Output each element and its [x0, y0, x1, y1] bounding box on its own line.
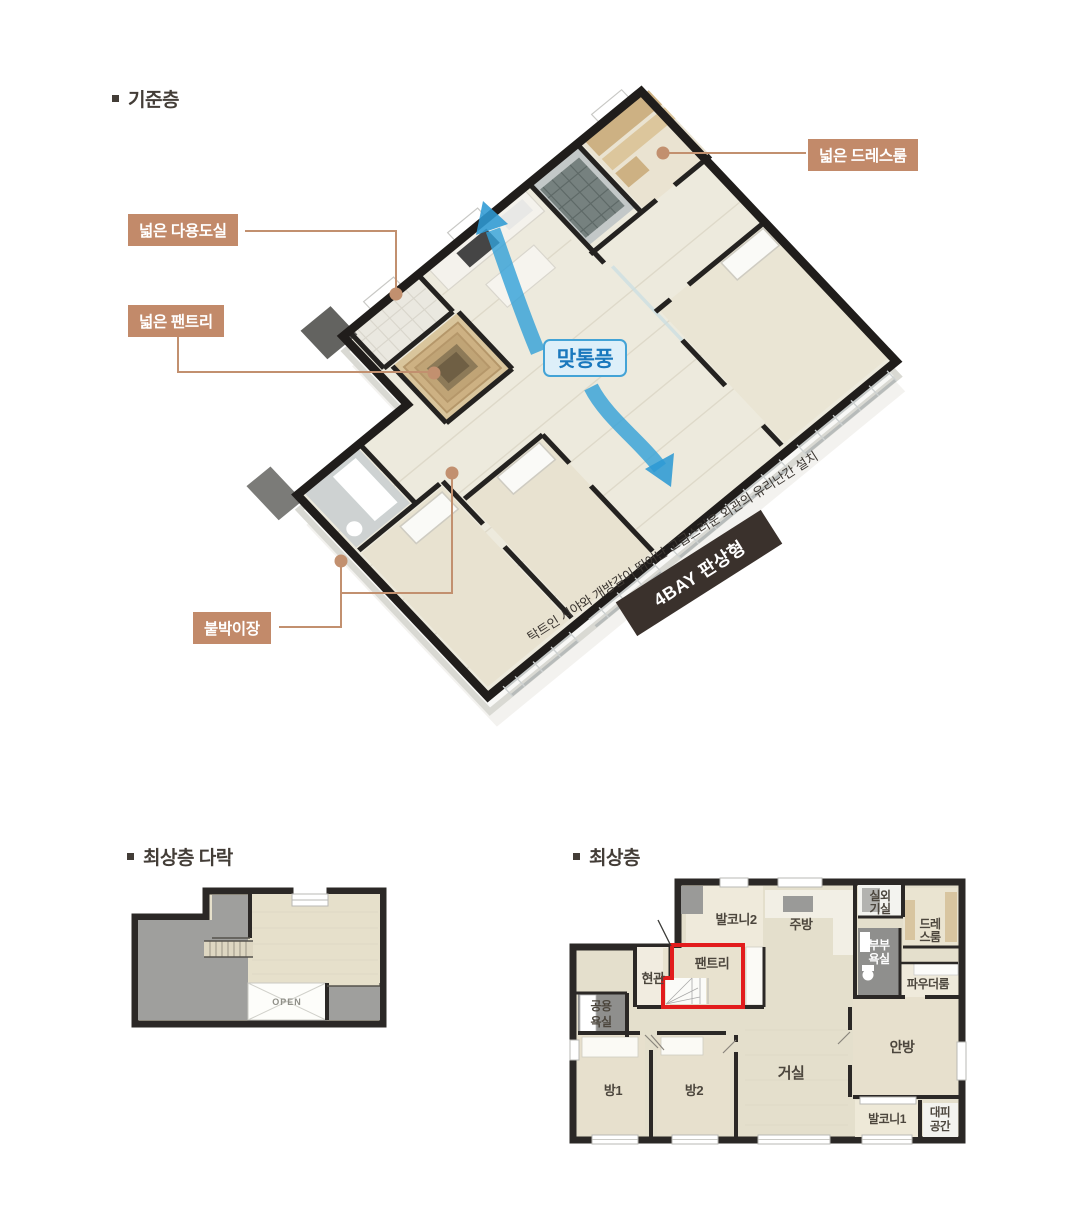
attic-gray-topleft	[212, 895, 250, 938]
label-kitchen: 주방	[790, 917, 813, 932]
label-balcony2: 발코니2	[715, 912, 756, 927]
label-sbath-2: 욕실	[590, 1014, 612, 1029]
callout-utility-room: 넓은 다용도실	[128, 214, 238, 246]
callout-builtin-closet: 붙박이장	[193, 612, 271, 644]
label-sbath-1: 공용	[590, 998, 612, 1013]
section-title-top-floor: 최상층	[573, 843, 640, 870]
cross-ventilation-badge: 맞통풍	[543, 339, 627, 377]
label-shelter-2: 공간	[930, 1119, 951, 1133]
label-bedroom2: 방2	[685, 1083, 703, 1098]
label-outdoor-2: 기실	[869, 901, 891, 916]
attic-gray-bottomright	[327, 986, 380, 1020]
callout-dressroom: 넓은 드레스룸	[808, 139, 918, 171]
label-outdoor-1: 실외	[869, 888, 890, 903]
label-mbath-2: 욕실	[868, 951, 890, 966]
section-title-attic: 최상층 다락	[127, 843, 233, 870]
attic-open-void: OPEN	[248, 983, 326, 1020]
square-bullet-icon	[112, 95, 119, 102]
label-balcony1: 발코니1	[868, 1111, 907, 1126]
label-master: 안방	[890, 1039, 915, 1055]
open-label: OPEN	[272, 997, 302, 1007]
callout-dot	[446, 467, 459, 480]
attic-plan: OPEN	[135, 891, 383, 1024]
label-mbath-1: 부부	[868, 938, 890, 952]
callout-dot	[335, 555, 348, 568]
square-bullet-icon	[127, 853, 134, 860]
page: OPEN	[0, 0, 1080, 1221]
label-pantry: 팬트리	[695, 956, 729, 971]
label-shelter-1: 대피	[930, 1105, 950, 1119]
label-dress-1: 드레	[919, 916, 941, 931]
label-powder: 파우더룸	[907, 976, 950, 991]
floorplan-artwork: OPEN	[0, 0, 1080, 1221]
section-title-text: 최상층 다락	[143, 843, 233, 870]
square-bullet-icon	[573, 853, 580, 860]
callout-dot	[657, 147, 670, 160]
callout-dot	[390, 288, 403, 301]
callout-pantry: 넓은 팬트리	[128, 305, 224, 337]
section-title-standard-floor: 기준층	[112, 85, 179, 112]
top-floor-plan: 발코니2 주방 실외 기실 드레 스룸 부부 욕실 파우더룸 현관 팬트리 공용…	[570, 878, 966, 1144]
label-dress-2: 스룸	[919, 929, 941, 944]
label-entrance: 현관	[642, 971, 665, 986]
label-bedroom1: 방1	[604, 1083, 622, 1098]
callout-dot	[428, 367, 441, 380]
section-title-text: 최상층	[589, 843, 640, 870]
label-living: 거실	[778, 1065, 805, 1082]
section-title-text: 기준층	[128, 85, 179, 112]
